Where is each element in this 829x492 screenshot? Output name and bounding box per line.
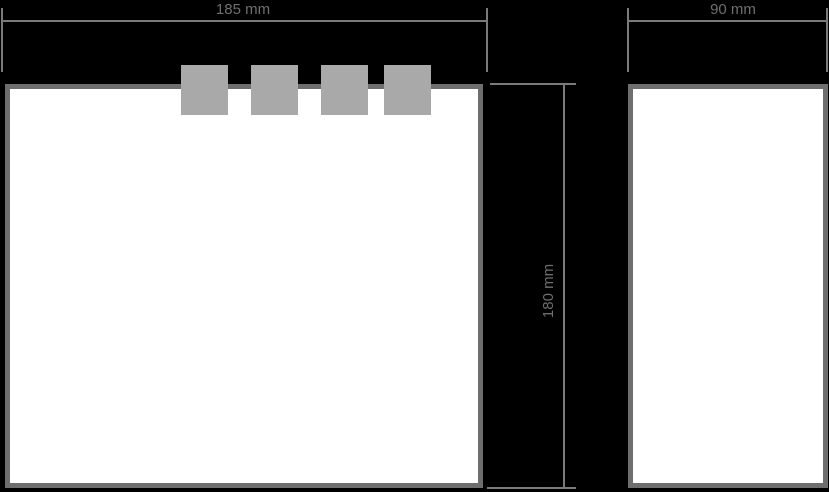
- mounting-tab-2: [251, 65, 298, 115]
- mounting-tab-4: [384, 65, 431, 115]
- dimension-185-line: [1, 20, 488, 22]
- technical-drawing-canvas: 185 mm 90 mm 180 mm: [0, 0, 829, 492]
- dimension-90-extension-line-left: [627, 8, 629, 72]
- dimension-185-label: 185 mm: [216, 2, 270, 18]
- side-view-panel: [628, 84, 828, 488]
- mounting-tab-1: [181, 65, 228, 115]
- dimension-185-extension-line-left: [1, 8, 3, 72]
- dimension-180-line: [563, 83, 565, 488]
- dimension-180-label: 180 mm: [541, 264, 557, 318]
- dimension-90-label: 90 mm: [710, 2, 756, 18]
- front-view-panel: [5, 84, 483, 488]
- dimension-90-line: [627, 20, 828, 22]
- dimension-185-extension-line-right: [486, 8, 488, 72]
- dimension-90-extension-line-right: [826, 8, 828, 72]
- mounting-tab-3: [321, 65, 368, 115]
